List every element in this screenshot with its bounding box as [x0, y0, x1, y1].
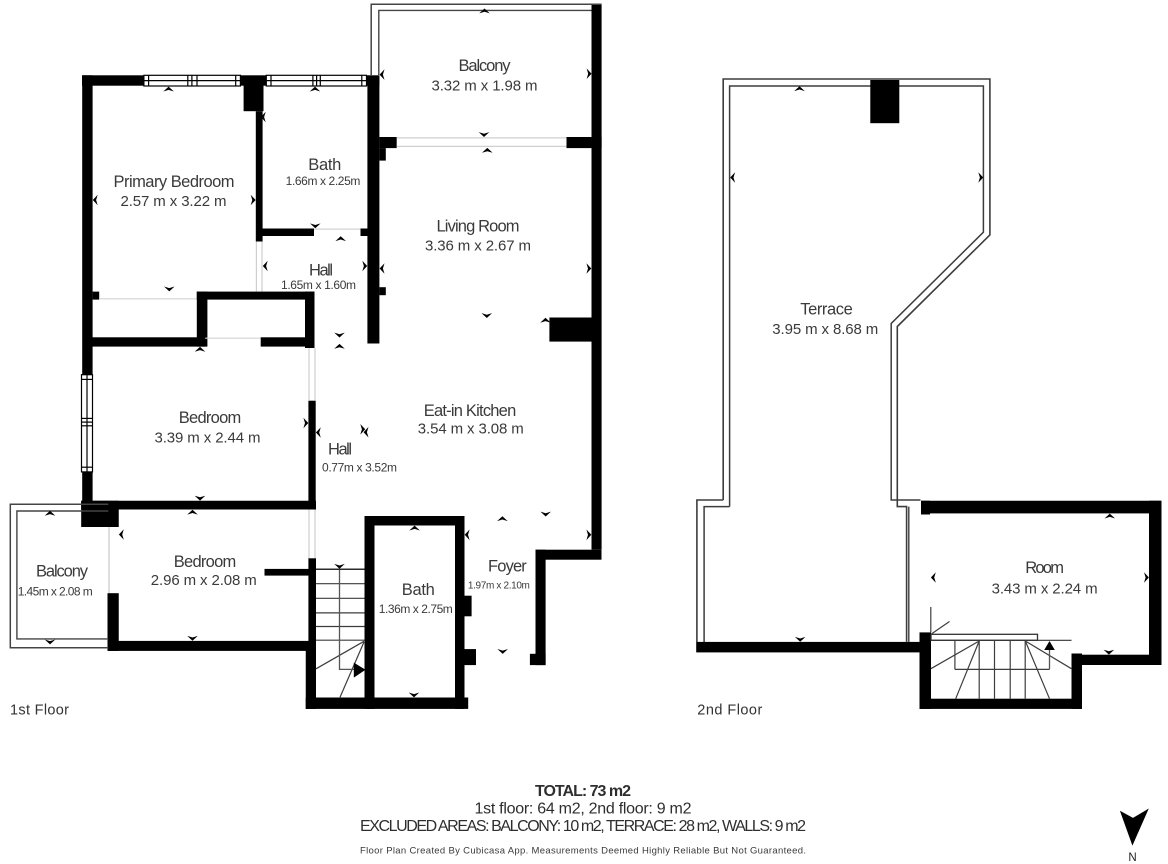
svg-text:2nd Floor: 2nd Floor — [697, 703, 762, 719]
svg-text:Bedroom: Bedroom — [174, 553, 237, 571]
svg-text:1.97m x 2.10m: 1.97m x 2.10m — [468, 581, 530, 592]
svg-text:2.57 m x 3.22 m: 2.57 m x 3.22 m — [121, 193, 227, 210]
svg-text:3.43 m x 2.24 m: 3.43 m x 2.24 m — [992, 581, 1098, 598]
svg-text:3.36 m x 2.67 m: 3.36 m x 2.67 m — [425, 237, 531, 254]
svg-text:EXCLUDED AREAS: BALCONY: 10 m2: EXCLUDED AREAS: BALCONY: 10 m2, TERRACE:… — [360, 818, 806, 835]
svg-text:Balcony: Balcony — [36, 563, 89, 581]
svg-text:Hall: Hall — [309, 262, 333, 280]
svg-text:2.96 m x 2.08 m: 2.96 m x 2.08 m — [151, 572, 257, 589]
svg-text:Living Room: Living Room — [437, 218, 520, 236]
svg-text:Foyer: Foyer — [488, 557, 527, 575]
svg-text:Terrace: Terrace — [800, 301, 853, 319]
svg-text:Balcony: Balcony — [459, 57, 512, 75]
svg-text:Floor Plan Created By Cubicasa: Floor Plan Created By Cubicasa App. Meas… — [360, 845, 806, 856]
svg-text:0.77m x 3.52m: 0.77m x 3.52m — [322, 461, 397, 475]
svg-text:N: N — [1128, 852, 1136, 864]
svg-text:Primary Bedroom: Primary Bedroom — [114, 173, 235, 191]
svg-text:Bath: Bath — [308, 156, 341, 174]
svg-text:1st Floor: 1st Floor — [10, 703, 69, 719]
svg-text:3.95 m x 8.68 m: 3.95 m x 8.68 m — [772, 321, 878, 338]
svg-text:1.65m x 1.60m: 1.65m x 1.60m — [281, 278, 356, 292]
svg-text:1st floor: 64 m2, 2nd floor: 9: 1st floor: 64 m2, 2nd floor: 9 m2 — [475, 800, 692, 817]
svg-text:Eat-in Kitchen: Eat-in Kitchen — [424, 402, 517, 420]
svg-text:Bath: Bath — [402, 581, 435, 599]
svg-text:3.32 m x 1.98 m: 3.32 m x 1.98 m — [432, 77, 538, 94]
svg-text:3.39 m x 2.44 m: 3.39 m x 2.44 m — [155, 430, 261, 447]
svg-text:1.36m x 2.75m: 1.36m x 2.75m — [379, 602, 453, 616]
svg-text:Room: Room — [1025, 559, 1064, 577]
svg-text:1.66m x 2.25m: 1.66m x 2.25m — [286, 174, 361, 188]
svg-text:Hall: Hall — [328, 440, 352, 458]
svg-text:Bedroom: Bedroom — [179, 409, 242, 427]
svg-text:3.54 m x 3.08 m: 3.54 m x 3.08 m — [418, 420, 524, 437]
svg-text:TOTAL: 73 m2: TOTAL: 73 m2 — [535, 783, 631, 800]
svg-text:1.45m x 2.08 m: 1.45m x 2.08 m — [18, 584, 93, 598]
